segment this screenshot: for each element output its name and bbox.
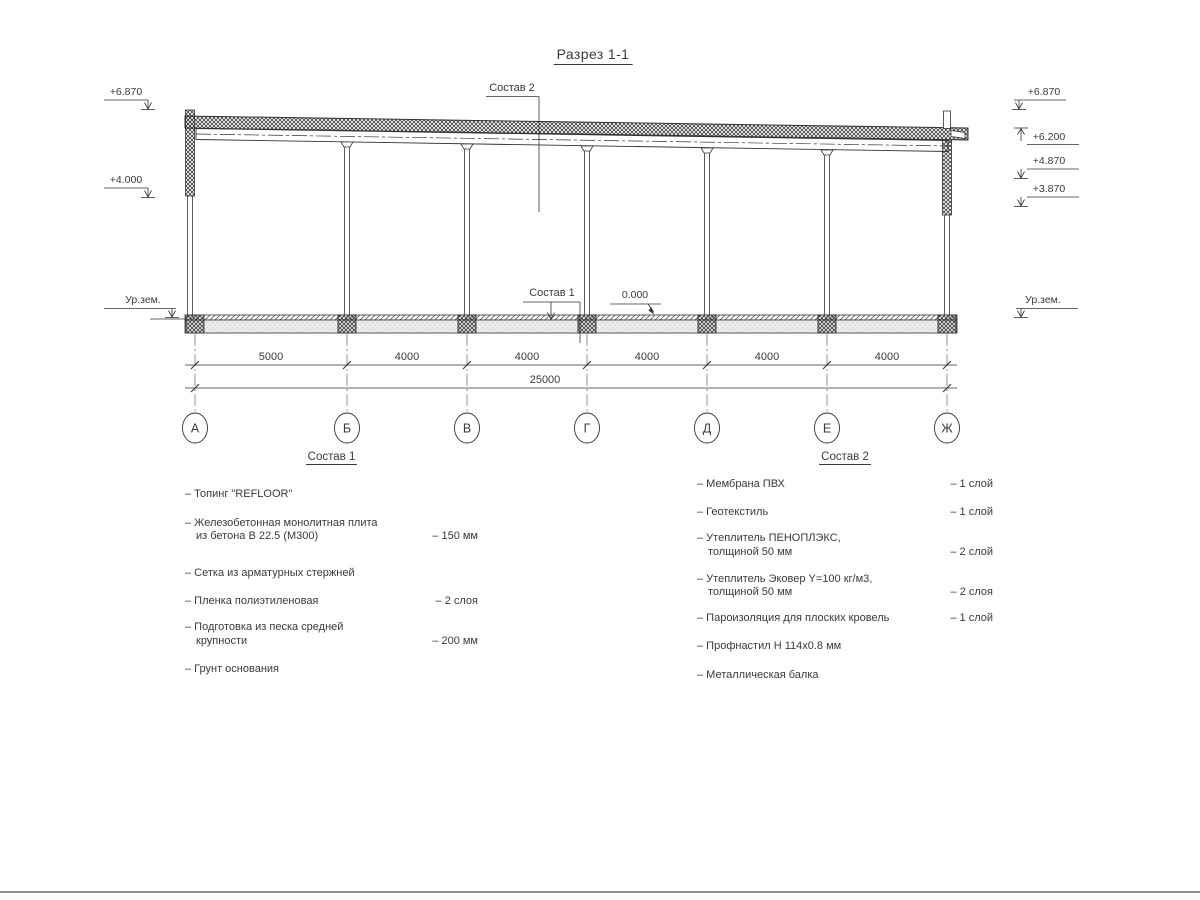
columns (341, 142, 833, 315)
list-item: – Топинг "REFLOOR" (185, 488, 478, 501)
svg-text:+6.870: +6.870 (1028, 86, 1061, 98)
dim-total: 25000 (530, 374, 561, 386)
list-item: – Железобетонная монолитная плита из бет… (185, 517, 478, 544)
leader-sostav2: Состав 2 (486, 82, 539, 212)
level-mark-left-4000: +4.000 (104, 174, 155, 198)
floor-slab (150, 315, 957, 333)
axis-label: В (463, 422, 471, 436)
composition-1-title: Состав 1 (185, 450, 478, 464)
right-wall (943, 111, 952, 315)
level-mark-right-ground: Ур.зем. (1014, 294, 1078, 318)
dim-segment: 4000 (755, 351, 779, 363)
axis-label: Ж (941, 422, 953, 436)
axis-label: Б (343, 422, 351, 436)
left-wall (186, 110, 195, 315)
drawing-sheet: Разрез 1-1 (0, 0, 1200, 900)
dim-segment: 4000 (875, 351, 899, 363)
svg-text:+4.000: +4.000 (110, 174, 143, 186)
list-item: – Геотекстиль– 1 слой (697, 506, 993, 519)
svg-text:+6.870: +6.870 (110, 86, 143, 98)
page-bottom-edge (0, 891, 1200, 900)
list-item: – Металлическая балка (697, 669, 993, 682)
list-item: – Подготовка из песка средней крупности–… (185, 621, 478, 648)
list-item: – Профнастил Н 114х0.8 мм (697, 640, 993, 653)
axis-label: А (191, 422, 200, 436)
axis-label: Г (584, 422, 591, 436)
svg-text:+3.870: +3.870 (1033, 183, 1066, 195)
section-drawing: 5000 4000 4000 4000 4000 4000 25000 А Б … (0, 0, 1200, 900)
axis-label: Д (703, 422, 712, 436)
level-mark-right-6870: +6.870 (1012, 86, 1066, 110)
axis-bubbles (183, 413, 960, 443)
svg-text:Состав 2: Состав 2 (489, 82, 535, 94)
list-item: – Сетка из арматурных стержней (185, 567, 478, 580)
list-item: – Пленка полиэтиленовая– 2 слоя (185, 595, 478, 608)
dim-segment: 5000 (259, 351, 283, 363)
svg-text:Ур.зем.: Ур.зем. (125, 294, 161, 306)
composition-list-1: Состав 1 – Топинг "REFLOOR" – Железобето… (185, 450, 478, 677)
svg-text:0.000: 0.000 (622, 289, 648, 301)
composition-list-2: Состав 2 – Мембрана ПВХ– 1 слой – Геотек… (697, 450, 993, 682)
grid-centerlines (195, 334, 947, 412)
list-item: – Грунт основания (185, 663, 478, 676)
list-item: – Пароизоляция для плоских кровель– 1 сл… (697, 612, 993, 625)
svg-text:+4.870: +4.870 (1033, 155, 1066, 167)
level-mark-left-ground: Ур.зем. (104, 294, 179, 318)
dimension-line-segments (185, 361, 957, 369)
svg-text:Состав 1: Состав 1 (529, 287, 575, 299)
list-item: – Утеплитель Эковер Y=100 кг/м3, толщино… (697, 573, 993, 600)
axis-label: Е (823, 422, 831, 436)
dim-segment: 4000 (515, 351, 539, 363)
dim-segment: 4000 (635, 351, 659, 363)
dimension-line-total (185, 384, 957, 392)
level-mark-right-6200: +6.200 (1014, 128, 1079, 145)
level-mark-right-3870: +3.870 (1014, 183, 1079, 207)
list-item: – Утеплитель ПЕНОПЛЭКС, толщиной 50 мм– … (697, 532, 993, 559)
svg-text:Ур.зем.: Ур.зем. (1025, 294, 1061, 306)
dim-segment: 4000 (395, 351, 419, 363)
zero-level-mark: 0.000 (610, 289, 661, 315)
list-item: – Мембрана ПВХ– 1 слой (697, 478, 993, 491)
level-mark-right-4870: +4.870 (1014, 155, 1079, 179)
level-mark-left-6870: +6.870 (104, 86, 155, 110)
composition-2-title: Состав 2 (697, 450, 993, 464)
svg-text:+6.200: +6.200 (1033, 131, 1066, 143)
